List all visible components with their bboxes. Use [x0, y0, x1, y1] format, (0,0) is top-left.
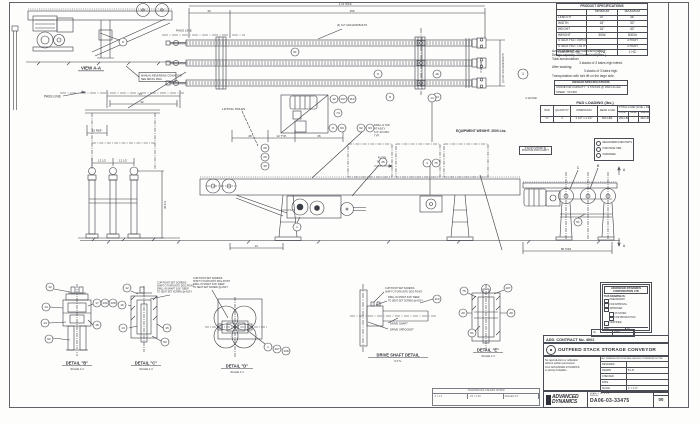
detail-b-linework	[49, 284, 93, 366]
balloon: 107	[273, 345, 281, 353]
svg-text:52: 52	[163, 340, 167, 344]
drive-shaft-label: DRIVE SHAFT	[390, 322, 408, 326]
view-a-a-linework	[12, 4, 176, 111]
title-block-bottom: ADVANCED DYNAMICS SCALE: 1 1/2" = 1'-0" …	[543, 391, 669, 408]
detail-e-title: DETAIL "E"	[477, 348, 499, 353]
svg-text:15: 15	[165, 326, 169, 330]
letter-b: B	[597, 164, 600, 168]
dim-36: 36	[317, 134, 321, 138]
balloon: 52	[45, 335, 53, 343]
shaft-cup-note-4: TO SEAT SET SCREW @ ASS'Y	[388, 300, 424, 303]
logo-block-icon	[546, 395, 551, 405]
anchor-bolts-note-top: (2) 1/2" ANCHOR BOLTS	[337, 23, 368, 27]
plan-rail-3	[166, 78, 486, 88]
svg-text:51: 51	[576, 220, 580, 224]
tolerance-cell: ANGLES ±1°	[504, 394, 539, 399]
cup-note1-4: TO SEAT SET SCREW @ ASS'Y	[157, 291, 193, 294]
balloon: 107	[504, 284, 512, 292]
svg-text:29: 29	[263, 155, 267, 159]
plan-rail-2	[166, 58, 486, 68]
elevation-linework	[80, 95, 620, 250]
svg-text:52: 52	[47, 337, 51, 341]
dim-30: 30 1/2	[163, 201, 167, 209]
balloon: 108	[282, 347, 290, 355]
balloon: 74	[334, 109, 342, 117]
svg-text:13: 13	[44, 305, 48, 309]
capacity-notes: Actual capacity: 150 bales/shift(8hrs.) …	[552, 49, 650, 78]
equipment-weight-note: EQUIPMENT WEIGHT: 2000 Lbs.	[456, 129, 506, 133]
pad-cell: 500 LBS.	[598, 117, 618, 123]
balloon: 29	[261, 153, 269, 161]
svg-text:60: 60	[340, 126, 344, 130]
field-label: DESIGNED	[601, 362, 627, 367]
phantom-note-box: STACKS SHOWN IN PHANTOM FOR CLARITY	[519, 146, 552, 155]
balloon: 13	[119, 324, 127, 332]
svg-text:9: 9	[377, 72, 379, 76]
pad-header: DEAD LOAD	[598, 106, 618, 117]
checkbox-label: APPROVED	[610, 308, 623, 311]
drill-note-4: TYP.	[374, 134, 380, 138]
pass-line-label-top: PASS LINE	[176, 29, 192, 33]
balloon: 51	[468, 329, 476, 337]
balloon: 35	[379, 158, 387, 166]
balloon: 8	[329, 124, 337, 132]
balloon: 8	[119, 38, 127, 46]
svg-text:75: 75	[462, 289, 466, 293]
legend-label: HARDWARE	[602, 154, 615, 157]
section-a-bottom: A	[623, 244, 626, 248]
dim-50-5-16: 50 5/16	[561, 247, 572, 251]
checkbox-icon	[609, 317, 614, 322]
dim-12a: 12 1/2	[98, 159, 106, 163]
detail-d-scale: SCALE 1:4	[230, 370, 244, 374]
end-view-linework	[523, 167, 620, 254]
letter-c: C	[577, 166, 580, 170]
pad-loading-table: PAD LOADING (lbs.) PAD QUANTITY DIMENSIO…	[540, 100, 650, 123]
dim-12b: 12 1/2	[119, 159, 127, 163]
svg-text:107: 107	[274, 347, 279, 351]
drawing-title: OUTFEED STACK STORAGE CONVEYOR	[558, 347, 656, 352]
balloon: 52	[161, 338, 169, 346]
drive-sprocket-label: DRIVE SPROCKET	[390, 328, 414, 332]
shaft-cup-note-2: SHIP TO TURN INTO DOG POINT	[385, 291, 423, 294]
pad-header: PAD	[541, 106, 554, 117]
svg-text:29: 29	[461, 311, 465, 315]
checkbox-icon	[604, 308, 609, 313]
circle-symbol-icon	[596, 153, 601, 158]
field-value	[627, 374, 668, 379]
svg-text:63: 63	[368, 126, 372, 130]
design-spec-line: SPEED : 50 FPM	[555, 90, 627, 94]
balloon: 28	[507, 309, 515, 317]
balloon: 75	[460, 287, 468, 295]
detail-d-linework	[205, 290, 268, 369]
detail-b-title: DETAIL "B"	[66, 361, 88, 366]
pad-cell: 250 LBS.	[618, 117, 629, 123]
detail-b-scale: SCALE 1:4	[70, 367, 84, 371]
svg-text:35: 35	[381, 160, 385, 164]
pad-cell: 4 1/2" x 4 1/2"	[571, 117, 598, 123]
logo-text: ADVANCED DYNAMICS	[552, 395, 578, 405]
balloon: 107	[339, 95, 347, 103]
checkbox-row: CERTIFIED	[604, 321, 648, 326]
design-spec-line: CONVEYOR CAPACITY : 3 STACKS @ 1500 Lbs.…	[555, 86, 627, 90]
svg-text:16: 16	[435, 72, 439, 76]
pad-note-bottom: 4 1/2 PAD	[525, 96, 537, 100]
support-posts	[86, 167, 140, 238]
legend-label: PURCHASE ITEM	[602, 148, 621, 151]
view-aa-label: VIEW A-A	[81, 66, 102, 71]
svg-text:107: 107	[340, 97, 345, 101]
dim-33: 33	[207, 9, 211, 13]
checkbox-label: AS NOTED	[615, 313, 627, 316]
dim-32: 32	[140, 100, 144, 104]
field-value: B.L.B.	[627, 368, 668, 373]
svg-text:1: 1	[267, 345, 269, 349]
revision-cell: REV. 00	[654, 392, 668, 407]
balloon: 62	[357, 124, 365, 132]
company-name-line: CORPORATION LTD	[605, 290, 647, 293]
svg-text:16: 16	[120, 303, 124, 307]
checkbox-label: FOR APPROVAL	[610, 304, 628, 307]
svg-text:1: 1	[522, 72, 524, 76]
approval-box-inner: ADVANCED DYNAMICS CORPORATION LTD THIS D…	[602, 284, 650, 331]
svg-text:110: 110	[350, 97, 355, 101]
legend-row: PURCHASE ITEM	[596, 147, 632, 152]
dim-174: 174 9/16	[339, 2, 352, 6]
tolerance-cells: .X = ±.1 .XX = ±.03 ANGLES ±1°	[433, 394, 539, 399]
detail-e-scale: SCALE 1:4	[481, 354, 495, 358]
drawing-sheet: VIEW A-A MANUAL REVERSING CONVEYOR SEE D…	[0, 0, 700, 424]
detail-d-title: DETAIL "D"	[226, 364, 248, 369]
drive-shaft-detail-title: DRIVE SHAFT DETAIL	[377, 353, 420, 358]
balloon-callouts: 8 51 9 16 8 14 1 12 107 110 74 8 60 28 2…	[41, 38, 582, 355]
field-label: CHECKED	[601, 374, 627, 379]
drawing-number-cell: SCALE: 1 1/2" = 1'-0" DWG No. DA06-03-33…	[588, 392, 654, 407]
balloon: 15	[93, 321, 101, 329]
svg-text:13: 13	[121, 326, 125, 330]
dim-12typ: 12 TYP.	[276, 134, 286, 138]
pad-cell: -	[628, 117, 639, 123]
svg-text:62: 62	[359, 126, 363, 130]
reversing-note-line2: SEE DETAIL DWG	[141, 78, 162, 81]
field-label: DRAWN	[601, 368, 627, 373]
drawing-number: DA06-03-33475	[590, 398, 651, 404]
detail-c-scale: SCALE 1:4	[139, 367, 153, 371]
balloon: 110	[348, 95, 356, 103]
lifting-holes-label: LIFTING HOLES	[222, 107, 245, 111]
drill-note-3: 1/4"-20 UNC.	[374, 130, 390, 134]
design-spec-box: DESIGN SPECIFICATIONS CONVEYOR CAPACITY …	[554, 80, 628, 95]
svg-text:51: 51	[470, 331, 474, 335]
drawing-status-heading: THIS DRAWING IS:	[604, 295, 648, 298]
field-value	[627, 362, 668, 367]
phantom-note-line: PHANTOM FOR CLARITY	[521, 150, 551, 153]
balloon: 9	[374, 70, 382, 78]
svg-text:110: 110	[435, 297, 440, 301]
revision-value: 00	[654, 396, 668, 403]
balloon: 8	[386, 93, 394, 101]
pad-note-side: 4 1/2 PAD	[479, 61, 483, 73]
svg-text:12: 12	[48, 285, 52, 289]
checkbox-icon	[604, 321, 609, 326]
detail-c-title: DETAIL "C"	[135, 361, 157, 366]
checkbox-label: FOR PRODUCTION	[615, 317, 636, 320]
svg-text:8: 8	[332, 126, 334, 130]
balloon: 28	[261, 144, 269, 152]
tolerance-box: TOLERANCES UNLESS NOTED .X = ±.1 .XX = ±…	[432, 388, 540, 406]
field-value	[627, 380, 668, 385]
balloon: 1	[264, 343, 272, 351]
tolerance-cell: .XX = ±.03	[468, 394, 503, 399]
svg-text:4: 4	[426, 161, 428, 165]
drill-note-2: AT ASS'Y	[374, 127, 386, 131]
company-logo-icon	[546, 345, 556, 355]
balloon: 110	[433, 295, 441, 303]
legend-row: WELD/FABRICATED PARTS	[596, 141, 632, 146]
pad-cell: "A"	[541, 117, 554, 123]
legend-label: WELD/FABRICATED PARTS	[602, 142, 632, 145]
svg-text:76: 76	[434, 161, 438, 165]
company-logo: ADVANCED DYNAMICS	[544, 392, 588, 407]
dim-156: 156	[349, 9, 354, 13]
balloon: 13	[42, 303, 50, 311]
balloon: 1	[518, 69, 528, 79]
balloon: 1	[293, 223, 301, 231]
title-block-fields: ALL DIMENSIONS IN INCHES UNLESS OTHERWIS…	[601, 357, 668, 390]
balloon: 29	[459, 309, 467, 317]
svg-text:14: 14	[43, 321, 47, 325]
note-line: Transportation with fork lift on the lar…	[552, 74, 650, 78]
balloon: 12	[46, 283, 54, 291]
logo-line: DYNAMICS	[552, 400, 578, 405]
svg-text:17: 17	[95, 301, 99, 305]
detail-e-linework	[467, 284, 507, 353]
dim-15-ref: 15 REF.	[92, 129, 102, 133]
checkbox-label: CERTIFIED	[610, 322, 622, 325]
svg-text:1: 1	[296, 225, 298, 229]
balloon: 51	[574, 218, 582, 226]
posts-view-linework	[60, 72, 186, 241]
svg-text:28: 28	[263, 146, 267, 150]
svg-text:12: 12	[125, 286, 129, 290]
svg-text:8: 8	[122, 40, 124, 44]
pass-line-label-left: PASS LINE	[44, 95, 62, 99]
svg-text:30: 30	[263, 164, 267, 168]
checkbox-label: PRELIMINARY	[610, 299, 626, 302]
logo-dot	[550, 349, 552, 351]
balloon: 12	[123, 284, 131, 292]
svg-text:8: 8	[389, 95, 391, 99]
field-label: DATE	[601, 380, 627, 385]
balloon: 16	[118, 301, 126, 309]
pad-header: QUANTITY	[554, 106, 571, 117]
tolerance-cell: .X = ±.1	[433, 394, 468, 399]
balloon: 60	[338, 124, 346, 132]
balloon: 12	[330, 95, 338, 103]
drill-note-1: DRILL & TAP	[374, 123, 390, 127]
balloon: 76	[432, 159, 440, 167]
drive-shaft-detail-scale: N.T.S.	[394, 359, 402, 363]
svg-text:51: 51	[293, 50, 297, 54]
symbol-legend: WELD/FABRICATED PARTS PURCHASE ITEM HARD…	[594, 138, 634, 161]
balloon: 30	[261, 162, 269, 170]
anchor-bolts-note-right: (2) 1/2" ANCHOR BOLTS	[501, 53, 505, 83]
balloon: 108	[109, 299, 117, 307]
svg-text:12: 12	[332, 97, 336, 101]
disclaimer: No reproduction or utilization without w…	[544, 357, 601, 390]
circle-symbol-icon	[596, 147, 601, 152]
pad-cell: 400 LBS.	[639, 117, 650, 123]
balloon: 14	[41, 319, 49, 327]
svg-text:108: 108	[283, 349, 288, 353]
dim-14: 14	[254, 244, 258, 248]
balloon: 14	[428, 94, 436, 102]
svg-text:28: 28	[509, 311, 513, 315]
pad-header: DIMENSION	[571, 106, 598, 117]
balloon: 51	[291, 48, 299, 56]
balloon: 15	[163, 324, 171, 332]
pad-cell: 4	[554, 117, 571, 123]
balloon: 106	[101, 299, 109, 307]
balloon: 17	[93, 299, 101, 307]
svg-text:15: 15	[95, 323, 99, 327]
svg-text:14: 14	[430, 96, 434, 100]
cup-note2-4: TO SEAT SET SCREW @ ASS'Y	[193, 286, 229, 289]
svg-text:108: 108	[110, 301, 115, 305]
drawing-title-bar: OUTFEED STACK STORAGE CONVEYOR	[543, 343, 669, 356]
contract-number: ADD. CONTRACT No. 4002	[543, 335, 669, 343]
legend-row: HARDWARE	[596, 153, 632, 158]
dim-34: 34	[138, 92, 142, 96]
balloon: 16	[433, 70, 441, 78]
disclaimer-line: is strictly forbidden.	[545, 369, 599, 373]
title-block: No. DATE ADD. CONTRACT No. 4002 OUTFEED …	[543, 329, 669, 408]
company-name: ADVANCED DYNAMICS CORPORATION LTD	[604, 286, 648, 294]
balloon: 63	[366, 124, 374, 132]
approval-box: ADVANCED DYNAMICS CORPORATION LTD THIS D…	[600, 282, 652, 333]
title-block-middle: No reproduction or utilization without w…	[543, 356, 669, 391]
dim-28: 28	[248, 134, 252, 138]
circle-symbol-icon	[596, 141, 601, 146]
plan-rail-1	[166, 38, 486, 48]
svg-text:107: 107	[505, 286, 510, 290]
svg-text:106: 106	[102, 301, 107, 305]
section-a-top: A	[623, 168, 626, 172]
svg-text:74: 74	[336, 111, 340, 115]
balloon: 4	[423, 159, 431, 167]
